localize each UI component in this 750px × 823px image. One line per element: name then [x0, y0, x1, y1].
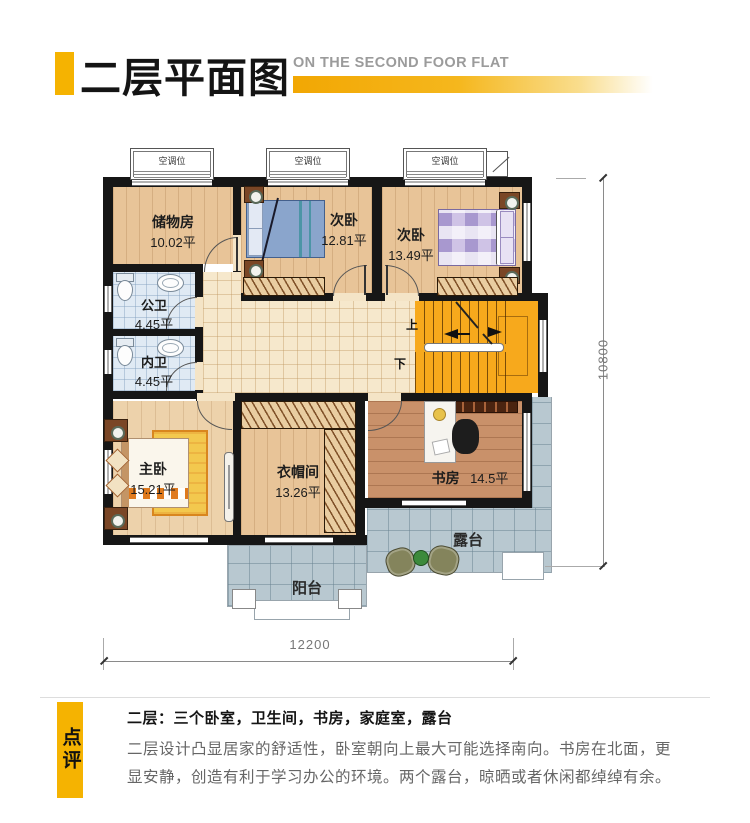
slider-cloak-balcony: [265, 537, 333, 543]
dim-ext-top: [556, 178, 586, 179]
balcony-step: [254, 600, 350, 620]
dim-height-label: 10800: [596, 325, 611, 395]
header-yellow-square: [55, 52, 74, 95]
closet-bedroom2b: [437, 277, 518, 296]
ac-unit-2: 空调位: [266, 148, 350, 180]
review-title: 二层：三个卧室，卫生间，书房，家庭室，露台: [127, 707, 707, 728]
window-west-bath1: [104, 286, 112, 312]
plant-icon: [413, 550, 429, 566]
footer-divider: [40, 697, 710, 698]
hallway-floor-alcove: [203, 272, 241, 393]
door-leaf-storage: [236, 237, 238, 271]
nightstand: [104, 507, 128, 530]
nightstand: [244, 186, 264, 203]
window-east-stairs: [539, 320, 547, 372]
room-label-balcony: 阳台: [283, 577, 331, 598]
room-label-cloakroom: 衣帽间 13.26平: [253, 462, 343, 501]
review-body-line2: 显安静，创造有利于学习办公的环境。两个露台，晾晒或者休闲都绰绰有余。: [127, 765, 717, 787]
balcony-column-left: [232, 589, 256, 609]
slider-study-terrace: [402, 500, 466, 506]
review-body-line1: 二层设计凸显居家的舒适性，卧室朝向上最大可能选择南向。书房在北面，更: [127, 737, 717, 759]
ac-unit-label: 空调位: [404, 154, 486, 167]
nightstand: [499, 192, 520, 209]
terrace-edge-right: [551, 397, 552, 573]
stairs-up-label: 上: [406, 316, 418, 333]
header-gradient-bar: [293, 76, 660, 93]
stairs-direction-arrow: [436, 298, 510, 360]
ac-unit-label: 空调位: [131, 154, 213, 167]
room-label-master: 主卧 15.21平: [113, 459, 193, 498]
room-label-bath-inner: 内卫 4.45平: [113, 352, 195, 390]
terrace-step: [502, 552, 544, 580]
dim-ext-bottom: [545, 566, 605, 567]
ac-sill: [134, 171, 210, 178]
room-label-terrace: 露台: [440, 529, 496, 550]
window-east-bedroom2b: [523, 203, 531, 261]
corner-window-icon: [486, 151, 508, 177]
terrace-floor-east: [532, 397, 552, 508]
nightstand: [104, 419, 128, 442]
ac-unit-label: 空调位: [267, 154, 349, 167]
review-tag-text: 点评: [57, 727, 84, 773]
window-south-master: [130, 537, 208, 543]
room-label-bath-public: 公卫 4.45平: [113, 295, 195, 333]
dim-tick: [599, 562, 607, 570]
room-label-storage: 储物房 10.02平: [123, 212, 223, 251]
wall-master-cloak: [233, 393, 241, 543]
door-leaf-bedroom2a: [364, 265, 366, 295]
bookshelf: [452, 401, 518, 413]
ac-unit-1: 空调位: [130, 148, 214, 180]
wall-bath-south: [103, 391, 203, 399]
door-leaf-bedroom2b: [386, 265, 388, 295]
dim-line-bottom: [103, 661, 514, 662]
review-tag-badge: 点评: [57, 702, 83, 798]
office-chair: [452, 419, 479, 454]
door-gap-study: [368, 393, 401, 401]
stairs-down-label: 下: [394, 355, 406, 372]
dim-ext-right: [513, 638, 514, 670]
wall-cloak-study: [356, 393, 365, 543]
room-label-study: 书房 14.5平: [415, 468, 525, 488]
sliding-door-master: [224, 452, 234, 522]
door-gap-master: [197, 393, 235, 401]
ac-sill: [407, 171, 483, 178]
dim-ext-left: [103, 638, 104, 670]
floor-plan-page: 二层平面图 ON THE SECOND FOOR FLAT: [0, 0, 750, 823]
dim-width-label: 12200: [250, 637, 370, 652]
closet-bedroom2a: [243, 277, 325, 296]
wall-storage-bath: [103, 264, 203, 272]
sink-icon: [157, 274, 184, 292]
balcony-column-right: [338, 589, 362, 609]
hallway-floor: [241, 301, 415, 393]
ac-sill: [270, 171, 346, 178]
nightstand: [244, 260, 264, 278]
ac-unit-3: 空调位: [403, 148, 487, 180]
room-label-bedroom2b: 次卧 13.49平: [372, 225, 450, 264]
window-west-bath2: [104, 350, 112, 374]
wardrobe-cloak-north: [241, 401, 356, 429]
page-subtitle-en: ON THE SECOND FOOR FLAT: [293, 55, 653, 71]
